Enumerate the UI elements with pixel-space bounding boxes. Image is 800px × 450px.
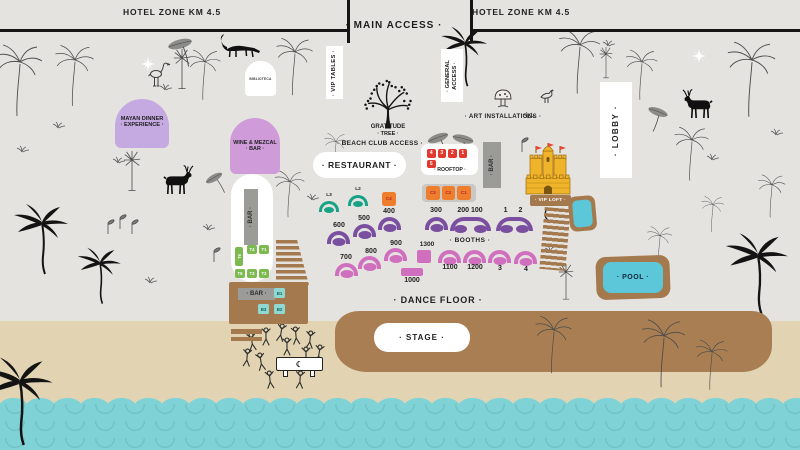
venue-map: HOTEL ZONE KM 4.5 HOTEL ZONE KM 4.5 · MA… xyxy=(0,0,800,450)
palm-sketch-icon xyxy=(696,340,728,390)
palm-sketch-icon xyxy=(536,316,572,373)
decorations-front xyxy=(0,0,800,450)
palm-sketch-icon xyxy=(642,320,685,387)
